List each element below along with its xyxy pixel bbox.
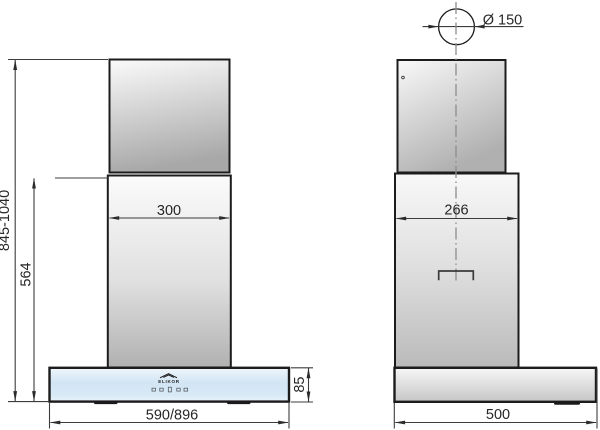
svg-text:266: 266	[444, 203, 468, 219]
svg-text:590/896: 590/896	[146, 408, 198, 424]
svg-text:ELIKOR: ELIKOR	[158, 379, 180, 384]
svg-text:85: 85	[292, 377, 308, 393]
svg-text:Ø 150: Ø 150	[483, 12, 523, 28]
svg-text:564: 564	[19, 262, 35, 286]
svg-text:845-1040: 845-1040	[0, 190, 13, 251]
svg-text:300: 300	[157, 203, 181, 219]
svg-text:500: 500	[486, 407, 510, 423]
